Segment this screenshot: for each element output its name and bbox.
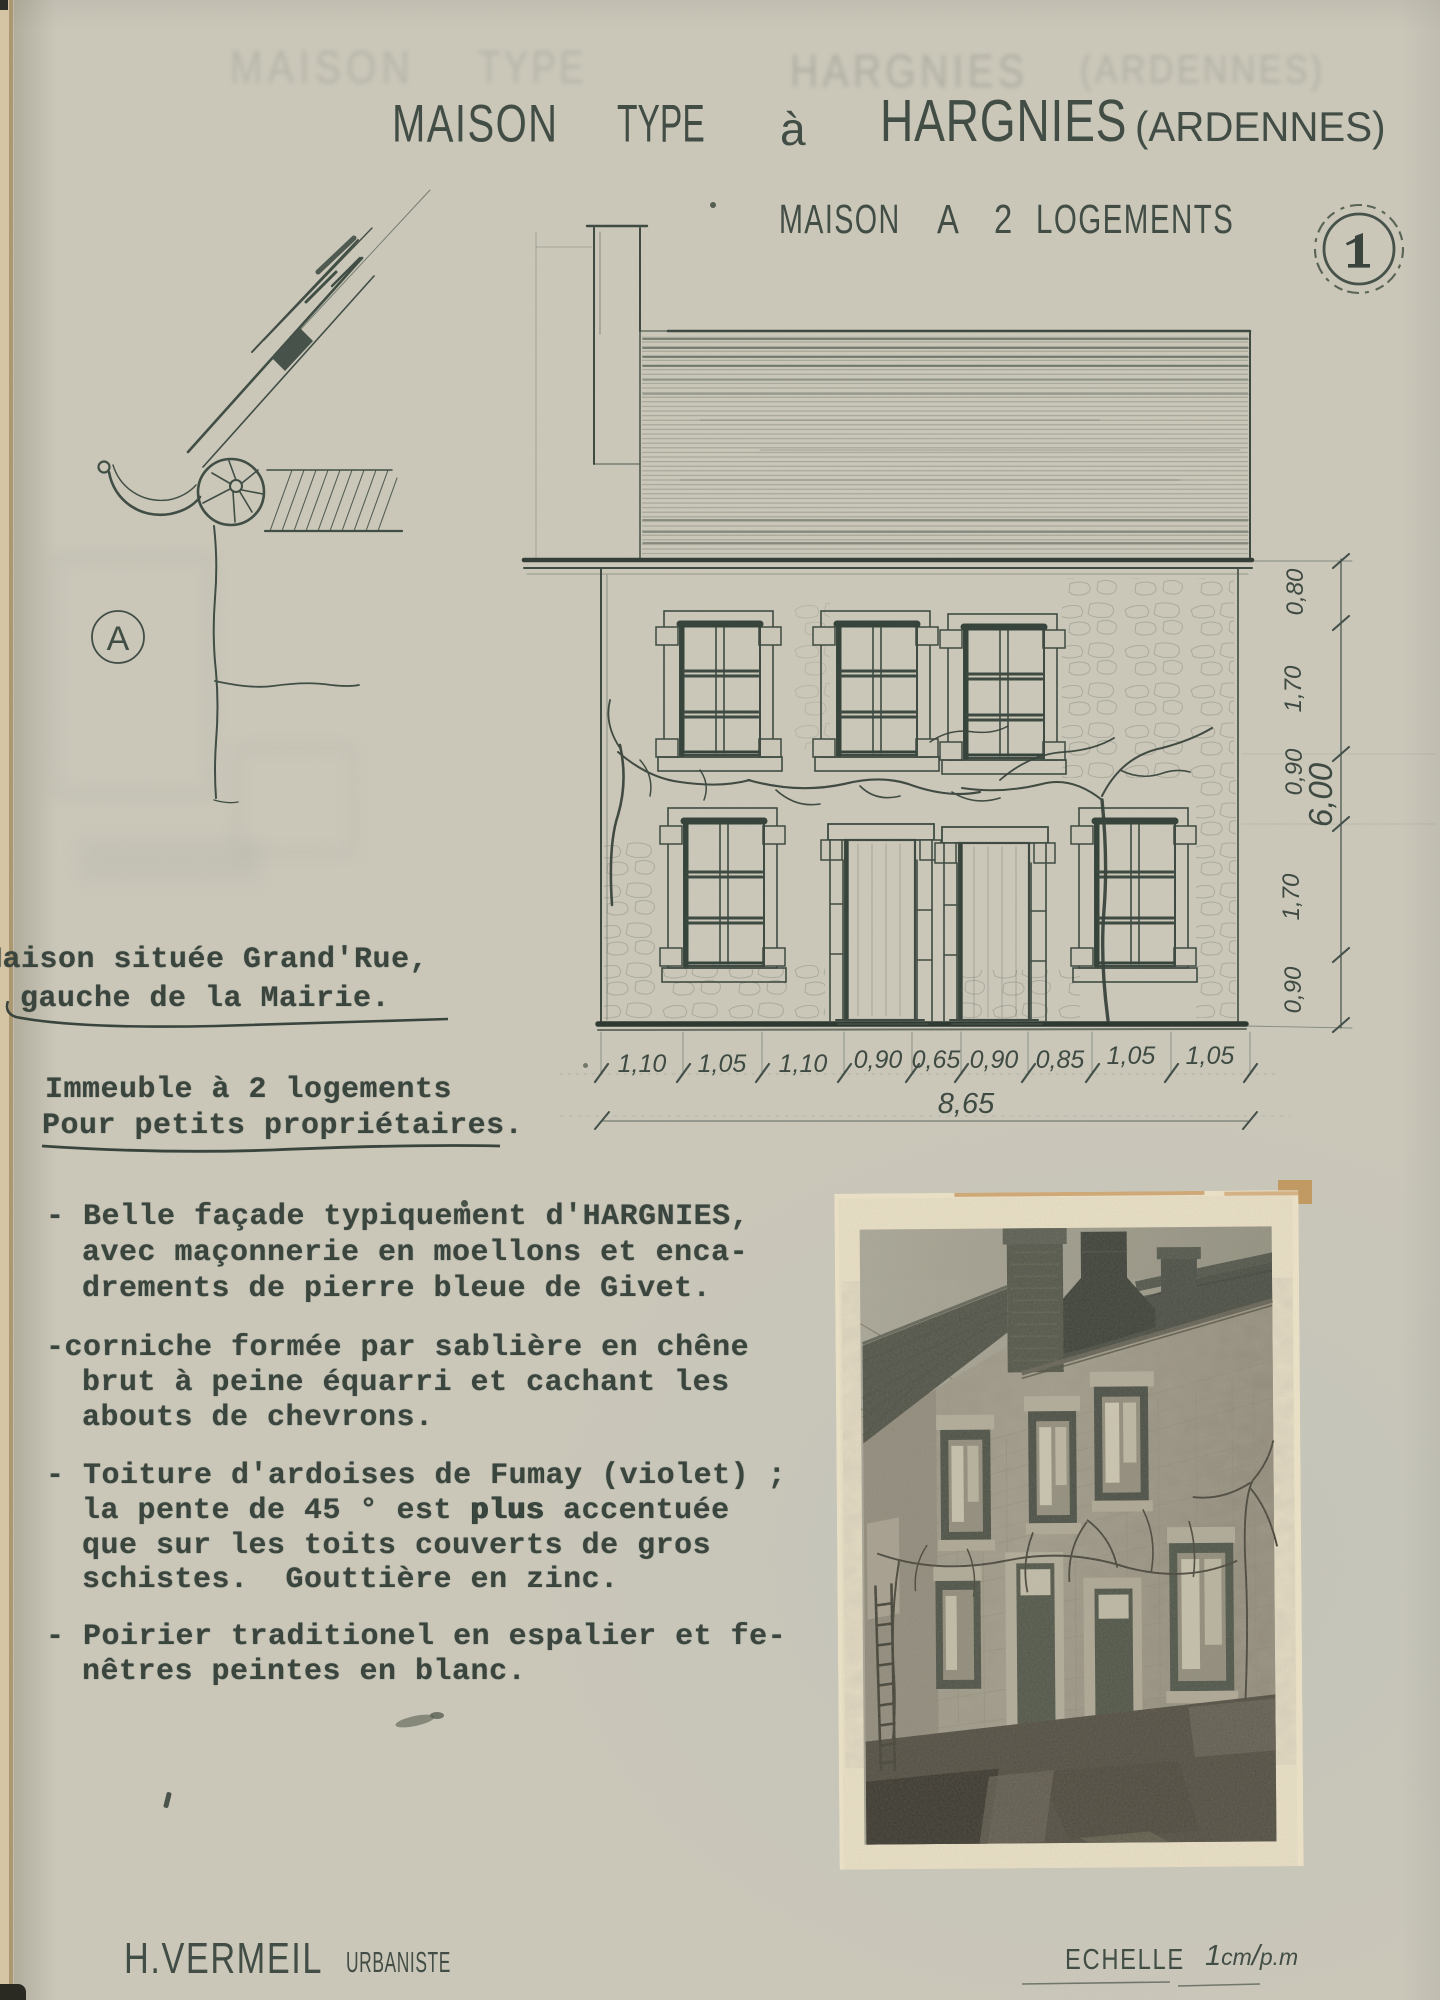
svg-text:6,00: 6,00 xyxy=(1302,762,1339,827)
svg-text:0,90: 0,90 xyxy=(1280,966,1307,1013)
svg-text:1,05: 1,05 xyxy=(1186,1042,1235,1070)
svg-text:1,70: 1,70 xyxy=(1280,665,1307,712)
svg-text:1,05: 1,05 xyxy=(698,1050,747,1078)
svg-text:0,90: 0,90 xyxy=(854,1046,903,1074)
svg-text:1,70: 1,70 xyxy=(1278,873,1305,920)
svg-text:0,65: 0,65 xyxy=(912,1046,961,1074)
svg-text:0,90: 0,90 xyxy=(970,1046,1019,1074)
svg-text:1,10: 1,10 xyxy=(779,1050,828,1078)
svg-text:A: A xyxy=(107,620,130,658)
svg-text:0,85: 0,85 xyxy=(1036,1046,1085,1074)
svg-text:1,05: 1,05 xyxy=(1107,1042,1156,1070)
svg-text:0,80: 0,80 xyxy=(1282,568,1309,615)
svg-text:8,65: 8,65 xyxy=(938,1088,995,1120)
svg-text:1,10: 1,10 xyxy=(618,1050,667,1078)
